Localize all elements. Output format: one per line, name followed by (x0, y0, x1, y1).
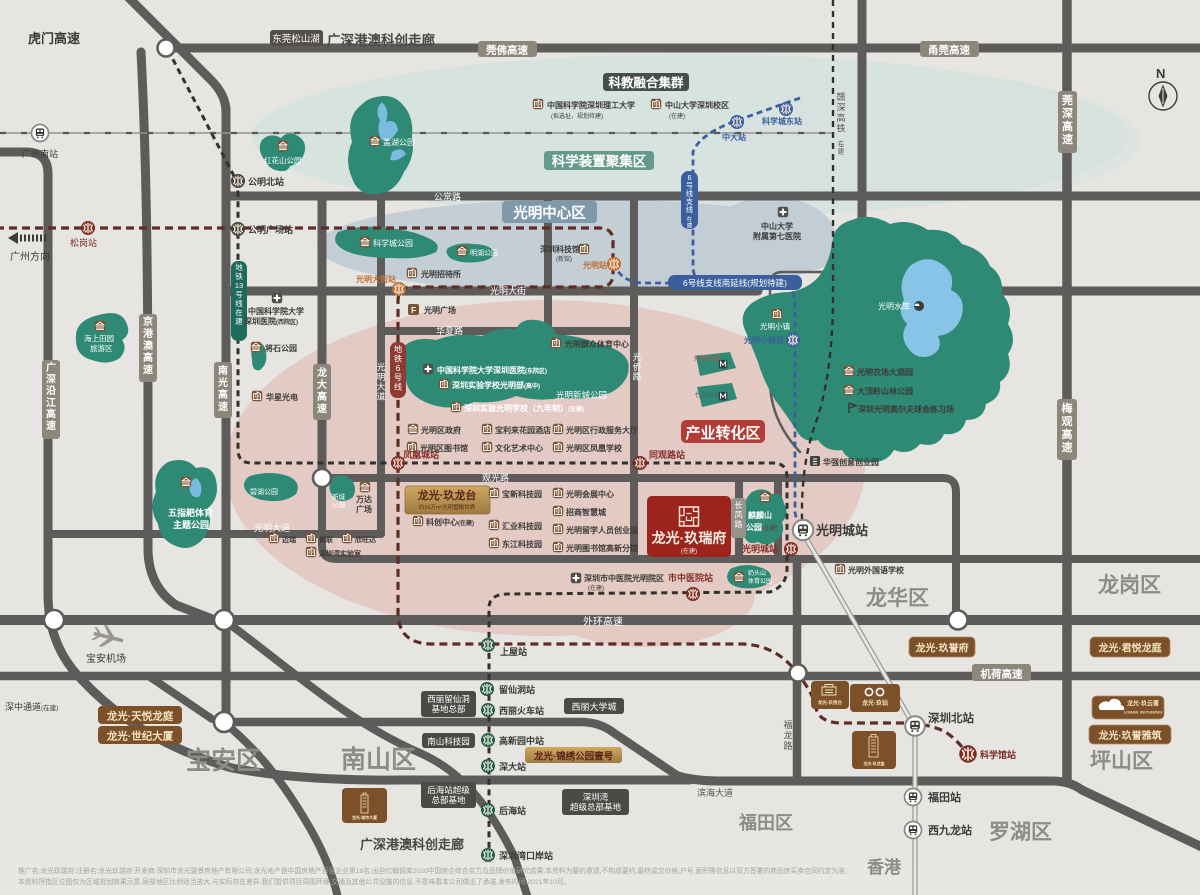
svg-text:后海站: 后海站 (499, 805, 526, 816)
svg-text:光明外国语学校: 光明外国语学校 (847, 565, 905, 575)
svg-text:赣深高铁: 赣深高铁 (836, 91, 845, 134)
svg-text:上屋站: 上屋站 (500, 646, 527, 657)
svg-text:深圳北站: 深圳北站 (928, 711, 974, 725)
svg-text:光明农场大观园: 光明农场大观园 (856, 367, 913, 377)
svg-text:长凤路: 长凤路 (735, 500, 743, 529)
svg-text:京港澳高速: 京港澳高速 (143, 315, 154, 376)
svg-text:虎门高速: 虎门高速 (28, 31, 80, 46)
svg-text:凤凰城站: 凤凰城站 (403, 449, 439, 460)
svg-text:附属第七医院: 附属第七医院 (753, 231, 801, 241)
svg-text:外环高速: 外环高速 (583, 615, 623, 628)
svg-text:龙光·锦绣公园壹号: 龙光·锦绣公园壹号 (533, 751, 614, 763)
svg-text:欣旺达: 欣旺达 (355, 535, 376, 544)
svg-text:光明小镇站: 光明小镇站 (743, 335, 784, 345)
svg-text:龙光·玖誉府: 龙光·玖誉府 (914, 642, 968, 655)
svg-text:广场: 广场 (356, 504, 372, 514)
svg-text:深圳湾实验室: 深圳湾实验室 (319, 549, 361, 558)
svg-text:N: N (1156, 66, 1165, 81)
svg-text:深圳市中医院光明院区: 深圳市中医院光明院区 (584, 573, 664, 583)
svg-text:光明城站: 光明城站 (741, 543, 778, 554)
svg-text:五指耙体育: 五指耙体育 (168, 507, 213, 518)
svg-text:光明小镇: 光明小镇 (760, 321, 790, 331)
svg-text:南山科技园: 南山科技园 (427, 737, 470, 747)
svg-text:奶头山: 奶头山 (748, 569, 766, 577)
svg-text:本资料所指区位图仅为区域规划效果示意,局部地区比例适当放大,: 本资料所指区位图仅为区域规划效果示意,局部地区比例适当放大,与实际存在差异,我们… (18, 877, 570, 886)
svg-text:科学装置聚集区: 科学装置聚集区 (552, 153, 647, 169)
svg-text:LOGAN JIUYUNZHU: LOGAN JIUYUNZHU (1124, 710, 1163, 715)
svg-text:(在建): (在建) (681, 547, 697, 555)
svg-text:文化艺术中心: 文化艺术中心 (495, 443, 543, 453)
svg-text:龙光·玖瑞府: 龙光·玖瑞府 (651, 530, 727, 546)
svg-text:科学城东站: 科学城东站 (762, 116, 802, 126)
svg-text:迈瑞: 迈瑞 (282, 535, 296, 544)
svg-text:宝新科技园: 宝新科技园 (502, 489, 542, 499)
svg-text:光明大道: 光明大道 (377, 362, 386, 401)
svg-text:光明新城公园: 光明新城公园 (556, 390, 607, 400)
svg-text:公明广场站: 公明广场站 (248, 224, 293, 235)
svg-text:福田站: 福田站 (927, 790, 961, 804)
svg-text:海上田园: 海上田园 (84, 333, 114, 343)
svg-text:推广名:龙光玖瑞府;注册名:龙光玖瑞府;开发商:深圳市龙光骏: 推广名:龙光玖瑞府;注册名:龙光玖瑞府;开发商:深圳市龙光骏景房地产有限公司;龙… (18, 866, 847, 875)
svg-text:广深港澳科创走廊: 广深港澳科创走廊 (327, 32, 435, 48)
svg-text:光明站: 光明站 (582, 260, 607, 270)
svg-text:龙光·城市大厦: 龙光·城市大厦 (351, 814, 377, 820)
svg-text:汇业科技园: 汇业科技园 (502, 521, 542, 531)
svg-text:龙光·玖云著: 龙光·玖云著 (1127, 700, 1159, 708)
svg-text:龙大高速: 龙大高速 (316, 366, 327, 415)
svg-text:留仙洞站: 留仙洞站 (499, 684, 535, 695)
svg-text:华夏路: 华夏路 (436, 325, 463, 336)
svg-text:莞佛高速: 莞佛高速 (485, 44, 528, 57)
svg-text:龙华区: 龙华区 (866, 586, 929, 610)
svg-text:在建: 在建 (687, 215, 693, 230)
svg-text:龙光·君悦龙庭: 龙光·君悦龙庭 (1097, 642, 1162, 655)
svg-text:市中医院站: 市中医院站 (668, 572, 713, 583)
svg-text:松岗站: 松岗站 (70, 237, 97, 248)
svg-text:光明大街站: 光明大街站 (355, 274, 396, 284)
svg-text:后海站超级: 后海站超级 (427, 785, 470, 795)
svg-text:西丽火车站: 西丽火车站 (499, 705, 544, 716)
svg-text:大顶岭山林公园: 大顶岭山林公园 (857, 386, 913, 396)
svg-text:中山大学深圳校区: 中山大学深圳校区 (665, 100, 729, 110)
svg-text:光明大道: 光明大道 (254, 522, 290, 533)
svg-text:龙光·天悦龙庭: 龙光·天悦龙庭 (106, 710, 174, 723)
svg-text:约10万m²光明墅概世界: 约10万m²光明墅概世界 (419, 503, 476, 511)
svg-text:将石公园: 将石公园 (265, 343, 297, 353)
svg-text:普联: 普联 (319, 535, 334, 544)
svg-text:(在建): (在建) (588, 584, 604, 592)
svg-text:公常路: 公常路 (434, 191, 461, 202)
svg-text:万达: 万达 (355, 494, 372, 504)
svg-text:6号线支线南延线(规划待建): 6号线支线南延线(规划待建) (683, 278, 787, 288)
svg-text:招商智慧城: 招商智慧城 (566, 507, 606, 517)
svg-text:光明水库: 光明水库 (878, 301, 910, 311)
svg-text:广深港澳科创走廊: 广深港澳科创走廊 (360, 837, 464, 852)
svg-text:东莞松山湖: 东莞松山湖 (272, 33, 320, 45)
svg-text:总部基地: 总部基地 (431, 795, 466, 805)
svg-text:光侨路: 光侨路 (633, 352, 642, 382)
svg-text:光明区凤凰学校: 光明区凤凰学校 (565, 443, 623, 453)
svg-text:光明区行政服务大厅: 光明区行政服务大厅 (565, 425, 638, 435)
svg-text:罗湖区: 罗湖区 (989, 821, 1052, 844)
svg-text:F: F (411, 305, 416, 315)
svg-text:莞深高速: 莞深高速 (1061, 93, 1073, 146)
svg-text:中大站: 中大站 (722, 132, 746, 142)
svg-text:观光路: 观光路 (482, 472, 509, 483)
svg-text:旅游区: 旅游区 (90, 343, 113, 353)
svg-text:碧湖公园: 碧湖公园 (250, 487, 278, 496)
svg-text:深圳实验光明学校（九年制）(在建): 深圳实验光明学校（九年制）(在建) (464, 403, 584, 413)
svg-text:南山区: 南山区 (341, 746, 416, 774)
svg-text:深圳湾口岸站: 深圳湾口岸站 (499, 850, 553, 861)
svg-text:龙岗区: 龙岗区 (1098, 573, 1161, 597)
svg-text:华星光电: 华星光电 (266, 392, 298, 402)
svg-text:西丽大学城: 西丽大学城 (571, 701, 616, 712)
svg-text:梅观高速: 梅观高速 (1062, 401, 1073, 454)
svg-text:福龙路: 福龙路 (783, 719, 792, 751)
svg-text:盖湖公园: 盖湖公园 (383, 137, 415, 147)
svg-text:广深沿江高速: 广深沿江高速 (46, 361, 56, 432)
svg-text:光明会展中心: 光明会展中心 (565, 489, 614, 499)
svg-text:南光高速: 南光高速 (217, 364, 228, 413)
svg-text:龙光·玖誉雅筑: 龙光·玖誉雅筑 (1097, 729, 1161, 742)
svg-text:中国科学院深圳理工大学: 中国科学院深圳理工大学 (547, 100, 635, 110)
svg-text:东江科技园: 东江科技园 (502, 539, 542, 549)
svg-text:光明区政府: 光明区政府 (420, 425, 461, 435)
svg-text:光明广场: 光明广场 (423, 305, 456, 315)
svg-text:宝安机场: 宝安机场 (86, 652, 126, 665)
svg-text:超级总部基地: 超级总部基地 (570, 802, 622, 812)
svg-text:光明图书馆高新分馆: 光明图书馆高新分馆 (565, 543, 638, 553)
svg-text:华强创意创业园: 华强创意创业园 (823, 457, 879, 467)
svg-text:深圳湾: 深圳湾 (583, 792, 609, 802)
svg-text:基地总部: 基地总部 (431, 704, 466, 714)
svg-text:红花山公园: 红花山公园 (264, 155, 302, 165)
svg-text:公明北站: 公明北站 (248, 176, 284, 187)
svg-text:新城: 新城 (332, 492, 346, 501)
svg-text:明湖公园: 明湖公园 (470, 248, 498, 257)
svg-text:福田区: 福田区 (738, 812, 793, 833)
svg-text:(新馆): (新馆) (556, 255, 572, 263)
svg-text:麒麟山: 麒麟山 (748, 510, 772, 520)
svg-text:科学馆站: 科学馆站 (980, 749, 1016, 760)
svg-text:深圳科技馆: 深圳科技馆 (540, 244, 580, 254)
svg-text:机荷高速: 机荷高速 (981, 668, 1023, 681)
svg-text:西九龙站: 西九龙站 (928, 823, 972, 837)
svg-text:宝安区: 宝安区 (186, 746, 261, 775)
svg-text:西丽留仙洞: 西丽留仙洞 (427, 694, 470, 704)
svg-text:深圳光明高尔夫球会练习场: 深圳光明高尔夫球会练习场 (858, 404, 954, 414)
svg-text:坪山区: 坪山区 (1090, 750, 1153, 773)
svg-text:科学城公园: 科学城公园 (373, 238, 413, 248)
svg-text:竹韵公园: 竹韵公园 (695, 390, 721, 399)
svg-text:光明城站: 光明城站 (815, 523, 868, 538)
svg-text:高新园中站: 高新园中站 (499, 735, 544, 746)
svg-text:同观路站: 同观路站 (649, 449, 685, 460)
svg-text:产业转化区: 产业转化区 (685, 424, 760, 442)
svg-text:龙光·玖龙玺: 龙光·玖龙玺 (862, 760, 884, 766)
svg-text:广州南站: 广州南站 (22, 148, 58, 159)
svg-text:主题公园: 主题公园 (173, 519, 209, 530)
svg-text:香港: 香港 (867, 857, 902, 877)
svg-text:龙光·玖龙台: 龙光·玖龙台 (417, 488, 477, 502)
svg-text:滨海大道: 滨海大道 (697, 787, 733, 798)
svg-text:龙光·世纪大厦: 龙光·世纪大厦 (106, 730, 174, 743)
svg-text:宝利来花园酒店: 宝利来花园酒店 (495, 425, 551, 435)
svg-text:红桥公园: 红桥公园 (694, 353, 720, 362)
svg-text:地铁13号线在建: 地铁13号线在建 (235, 262, 243, 326)
svg-text:光明群众体育中心: 光明群众体育中心 (564, 339, 629, 349)
svg-text:中国科学院大学: 中国科学院大学 (248, 306, 304, 316)
svg-text:(在建): (在建) (669, 112, 685, 120)
svg-text:龙光·玖悦台: 龙光·玖悦台 (817, 699, 842, 706)
svg-text:科教融合集群: 科教融合集群 (608, 75, 684, 90)
svg-text:公园: 公园 (332, 501, 345, 509)
svg-text:光明留学人员创业园: 光明留学人员创业园 (565, 525, 638, 535)
svg-text:中山大学: 中山大学 (761, 221, 793, 231)
svg-text:光明招待所: 光明招待所 (420, 269, 461, 279)
svg-text:光明大街: 光明大街 (490, 285, 526, 296)
svg-text:深大站: 深大站 (499, 761, 526, 772)
svg-text:甬莞高速: 甬莞高速 (928, 44, 970, 57)
svg-text:在建: 在建 (838, 139, 845, 156)
svg-text:龙光·玖钻: 龙光·玖钻 (862, 699, 888, 707)
svg-text:光明中心区: 光明中心区 (512, 204, 586, 222)
svg-text:(拟选址，规划待建): (拟选址，规划待建) (551, 112, 603, 120)
svg-text:体育公园: 体育公园 (748, 577, 772, 585)
svg-text:广州方向: 广州方向 (10, 250, 50, 263)
